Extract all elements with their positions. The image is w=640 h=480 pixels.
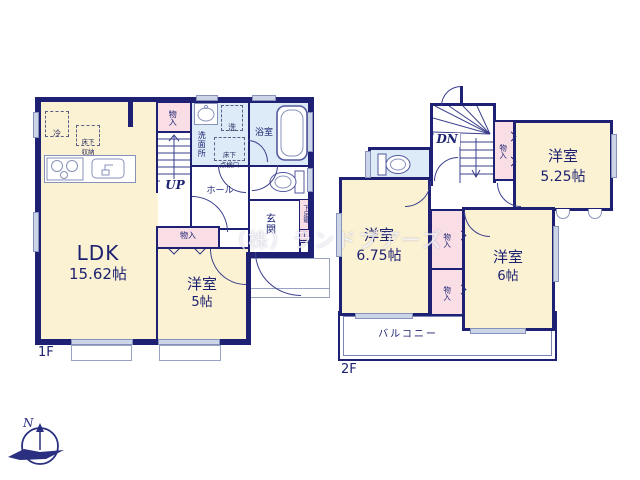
closet-top-label: 物入: [168, 106, 177, 130]
corridor: [158, 193, 192, 228]
compass-icon: N: [6, 410, 68, 472]
window: [365, 151, 371, 178]
window: [470, 328, 526, 334]
fridge-label: 冷: [53, 129, 61, 138]
underfloor-storage-label: 床下 収納: [82, 138, 95, 156]
window: [553, 226, 559, 282]
stairs-down-label: DN: [434, 133, 460, 147]
window: [71, 339, 133, 345]
floor-plan-canvas: 冷 床下 収納 洗 床下 点検口: [0, 0, 640, 480]
bedroom525-size: 5.25帖: [533, 169, 593, 185]
closet-2f-c-label: 物入: [442, 280, 451, 306]
washer-label: 洗: [228, 123, 236, 132]
wall-kitchen-stub: [128, 97, 133, 127]
window: [196, 95, 218, 101]
north-label: N: [22, 416, 34, 430]
bathtub-icon: [276, 105, 308, 161]
wall: [246, 252, 251, 345]
fridge-space: 冷: [45, 111, 69, 137]
casement-window: [556, 209, 570, 219]
washbasin-icon: [194, 103, 218, 125]
underfloor-access: 床下 点検口: [214, 137, 245, 161]
bathroom-label: 浴室: [250, 128, 278, 138]
toilet-icon: [377, 152, 413, 177]
washer-space: 洗: [221, 105, 243, 131]
bedroom6-name: 洋室: [482, 249, 534, 266]
window: [611, 134, 617, 178]
window: [33, 212, 39, 252]
closet-2f-a-label: 物入: [498, 138, 507, 164]
ldk-size: 15.62帖: [55, 266, 141, 283]
floor1-label: 1F: [38, 346, 64, 361]
window: [33, 112, 39, 138]
bedroom5-size: 5帖: [178, 296, 226, 311]
door-arc: [441, 86, 461, 106]
balcony-label: バルコニー: [368, 329, 448, 341]
closet-mid-label: 物入: [172, 231, 204, 240]
bedroom6-size: 6帖: [488, 270, 528, 285]
watermark: （株）ランドプアーズ: [226, 224, 444, 253]
underfloor-storage: 床下 収納: [76, 125, 100, 146]
stairs-up-label: UP: [160, 179, 190, 193]
kitchen-counter-icon: [44, 155, 136, 183]
window: [307, 168, 313, 192]
bedroom5-name: 洋室: [172, 276, 232, 293]
hall-label: ホール: [200, 186, 240, 196]
window: [158, 339, 220, 345]
casement-window: [588, 209, 602, 219]
ldk-name: LDK: [60, 242, 136, 265]
stairs-up-icon: [158, 133, 190, 183]
window: [252, 95, 276, 101]
room-bedroom525: [513, 120, 613, 211]
floor2-label: 2F: [341, 363, 367, 378]
window: [355, 313, 413, 319]
bedroom525-name: 洋室: [537, 148, 589, 165]
washroom-label: 洗面所: [197, 124, 206, 164]
